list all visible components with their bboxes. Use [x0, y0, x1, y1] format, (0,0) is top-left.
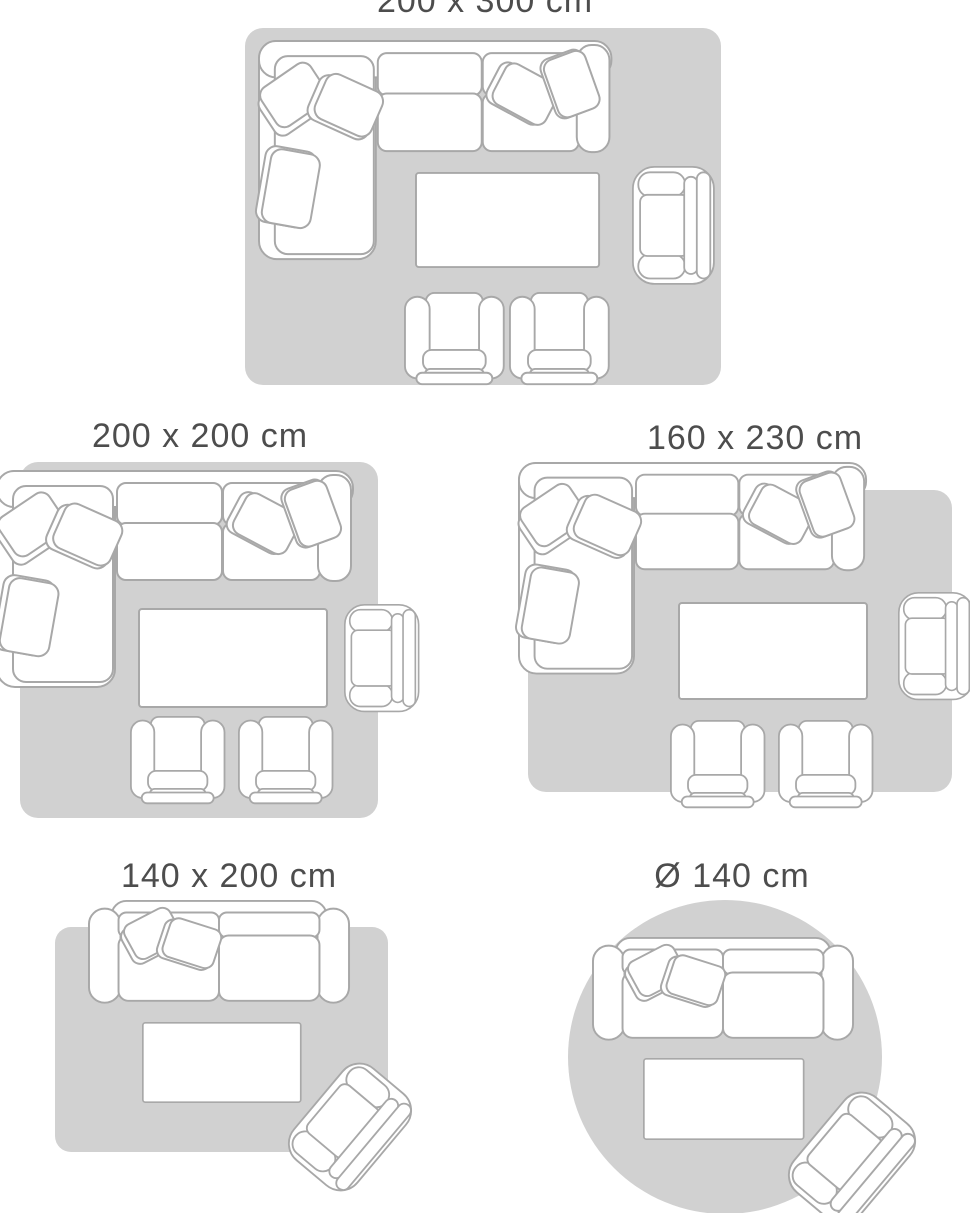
- coffee-table-icon: [644, 1059, 804, 1139]
- chair-icon: [239, 717, 333, 803]
- coffee-table-icon: [416, 173, 599, 267]
- two-seater-sofa-icon: [89, 901, 349, 1003]
- layout-illustration-200x200: [0, 455, 485, 830]
- two-seater-sofa-icon: [593, 938, 853, 1040]
- chair-icon: [779, 721, 873, 807]
- coffee-table-icon: [679, 603, 867, 699]
- layout-illustration-140x200: [0, 890, 485, 1213]
- chair-icon: [405, 293, 504, 384]
- layout-illustration-160x230: [485, 455, 970, 830]
- chair-icon: [671, 721, 765, 807]
- armchair-icon: [345, 605, 419, 712]
- chair-icon: [510, 293, 609, 384]
- coffee-table-icon: [143, 1023, 301, 1102]
- chair-icon: [131, 717, 225, 803]
- armchair-icon: [633, 167, 714, 284]
- layout-illustration-d140: [485, 890, 970, 1213]
- layout-illustration-200x300: [0, 0, 970, 405]
- rug-size-guide: 200 x 300 cm 200 x 200 cm 160 x 230 cm 1…: [0, 0, 970, 1213]
- size-label-160x230: 160 x 230 cm: [523, 419, 970, 457]
- size-label-200x200: 200 x 200 cm: [0, 417, 400, 455]
- armchair-icon: [899, 593, 970, 700]
- coffee-table-icon: [139, 609, 327, 707]
